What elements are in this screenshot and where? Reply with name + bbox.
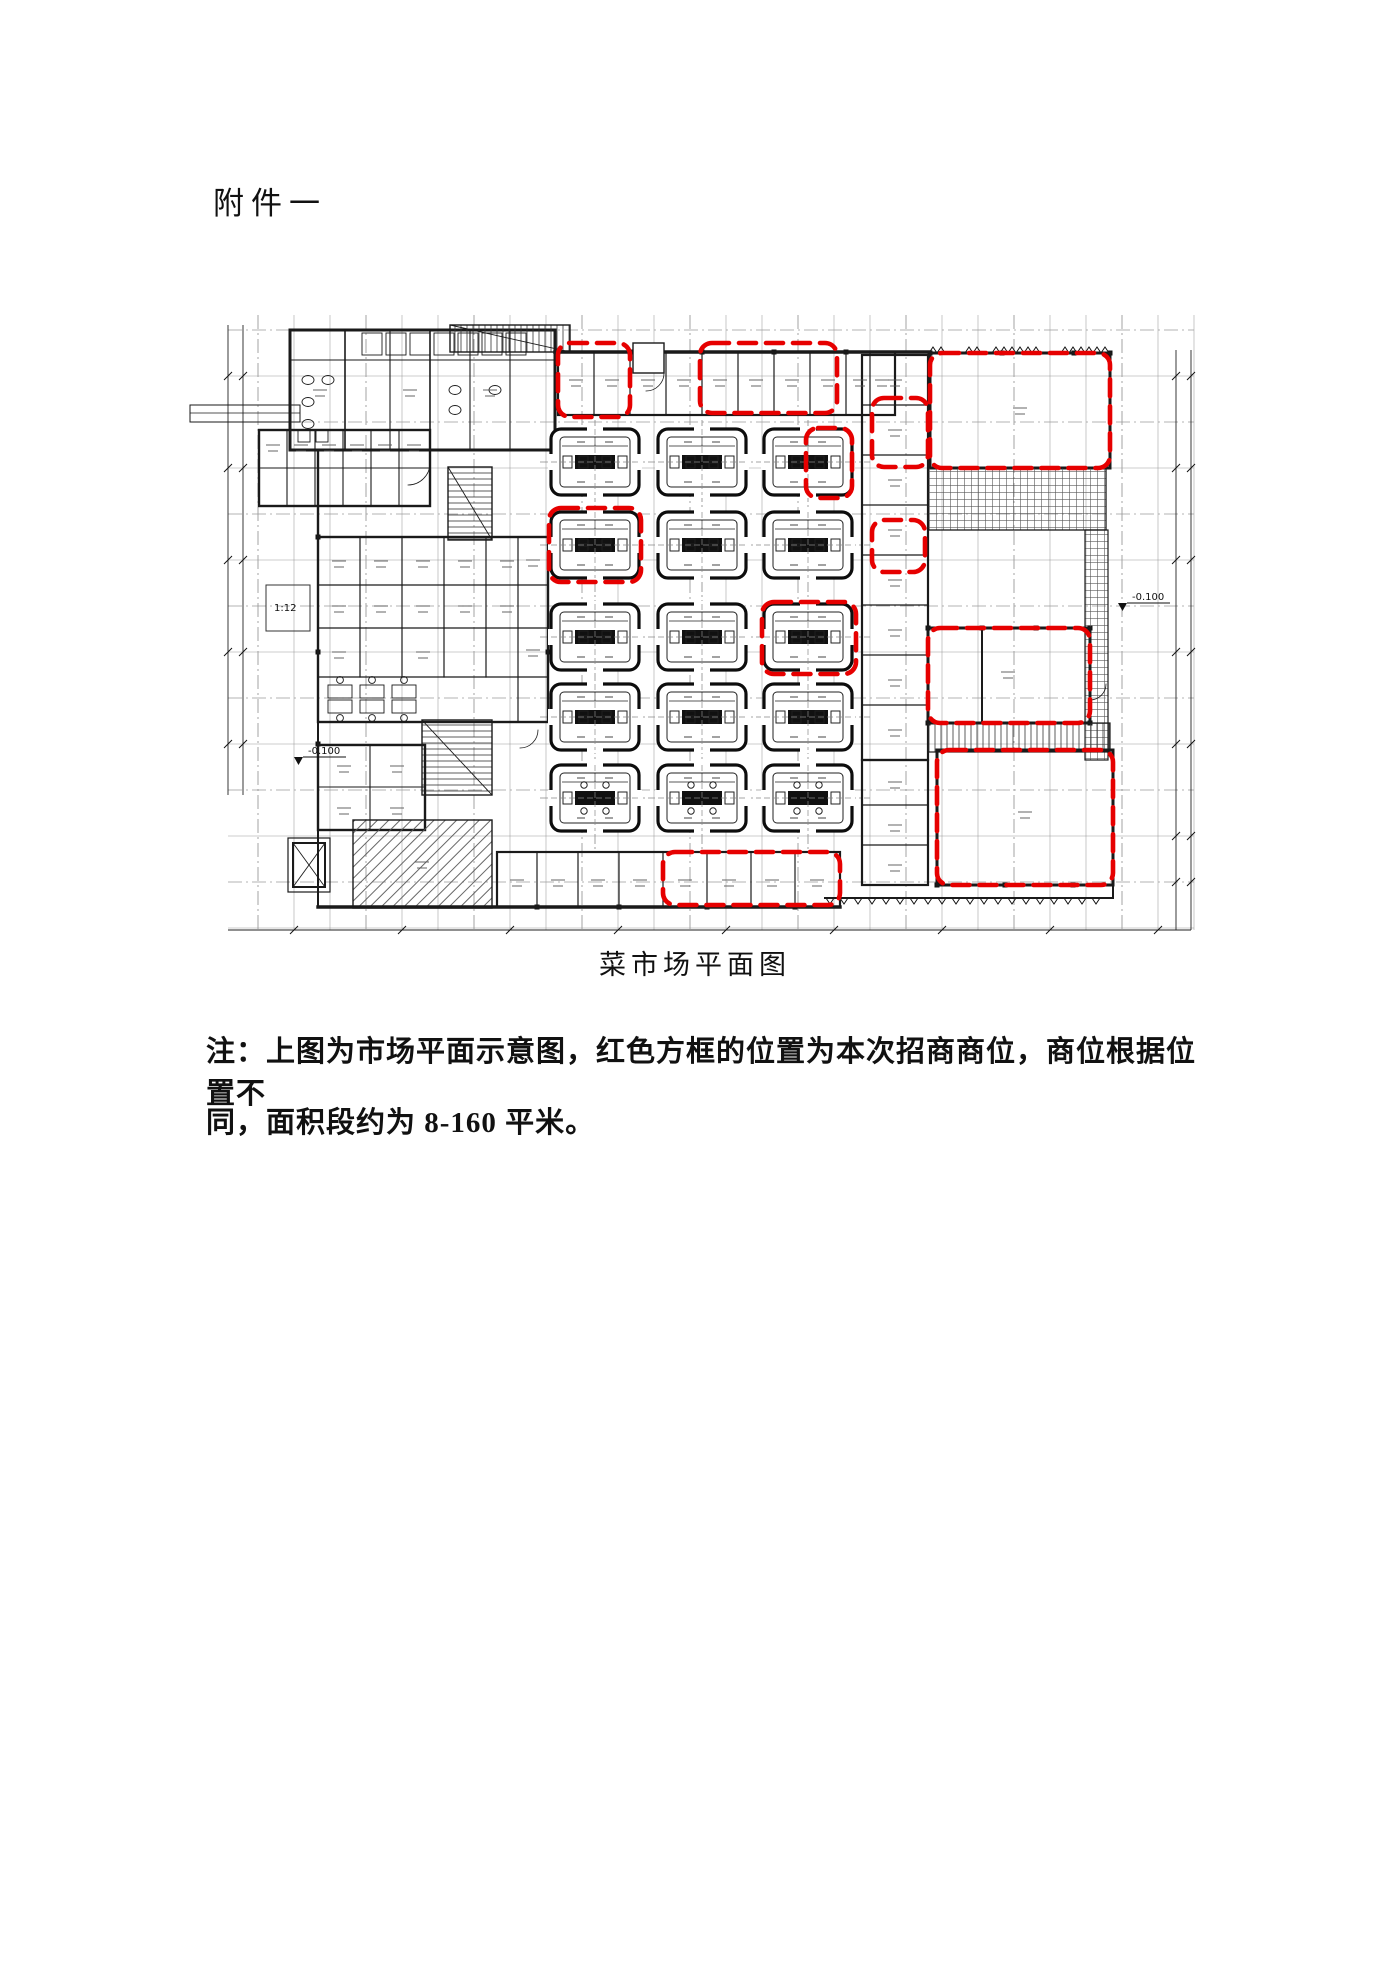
stall-island [548, 601, 642, 673]
highlight-box [872, 520, 925, 572]
stall-island [655, 509, 749, 581]
stall-island [548, 509, 642, 581]
floor-plan: -0.100-0.1001:12 [170, 230, 1220, 950]
attachment-title: 附件一 [213, 178, 327, 223]
plan-marker-label: -0.100 [1132, 592, 1164, 603]
stall-island [548, 426, 642, 498]
stall-island [655, 681, 749, 753]
floor-plan-svg: -0.100-0.1001:12 [170, 230, 1220, 950]
building-walls [190, 325, 1113, 908]
room-label-marks [266, 380, 1032, 886]
highlight-box [928, 628, 1090, 723]
stall-island [655, 762, 749, 834]
stall-island [761, 601, 855, 673]
plan-marker-label: -0.100 [308, 746, 340, 757]
stall-island [761, 681, 855, 753]
plan-marker-label: 1:12 [274, 603, 296, 614]
stall-island [655, 426, 749, 498]
note-line-2: 同，面积段约为 8-160 平米。 [206, 1099, 1211, 1141]
highlight-box [937, 750, 1113, 885]
market-stall-islands [548, 426, 855, 834]
figure-caption: 菜市场平面图 [170, 943, 1220, 982]
highlight-box [930, 353, 1110, 468]
stall-island [761, 762, 855, 834]
stall-island [548, 681, 642, 753]
highlight-box [872, 398, 928, 467]
stall-island [655, 601, 749, 673]
stall-island [761, 509, 855, 581]
stall-island [548, 762, 642, 834]
document-page: 附件一 [0, 0, 1390, 1965]
